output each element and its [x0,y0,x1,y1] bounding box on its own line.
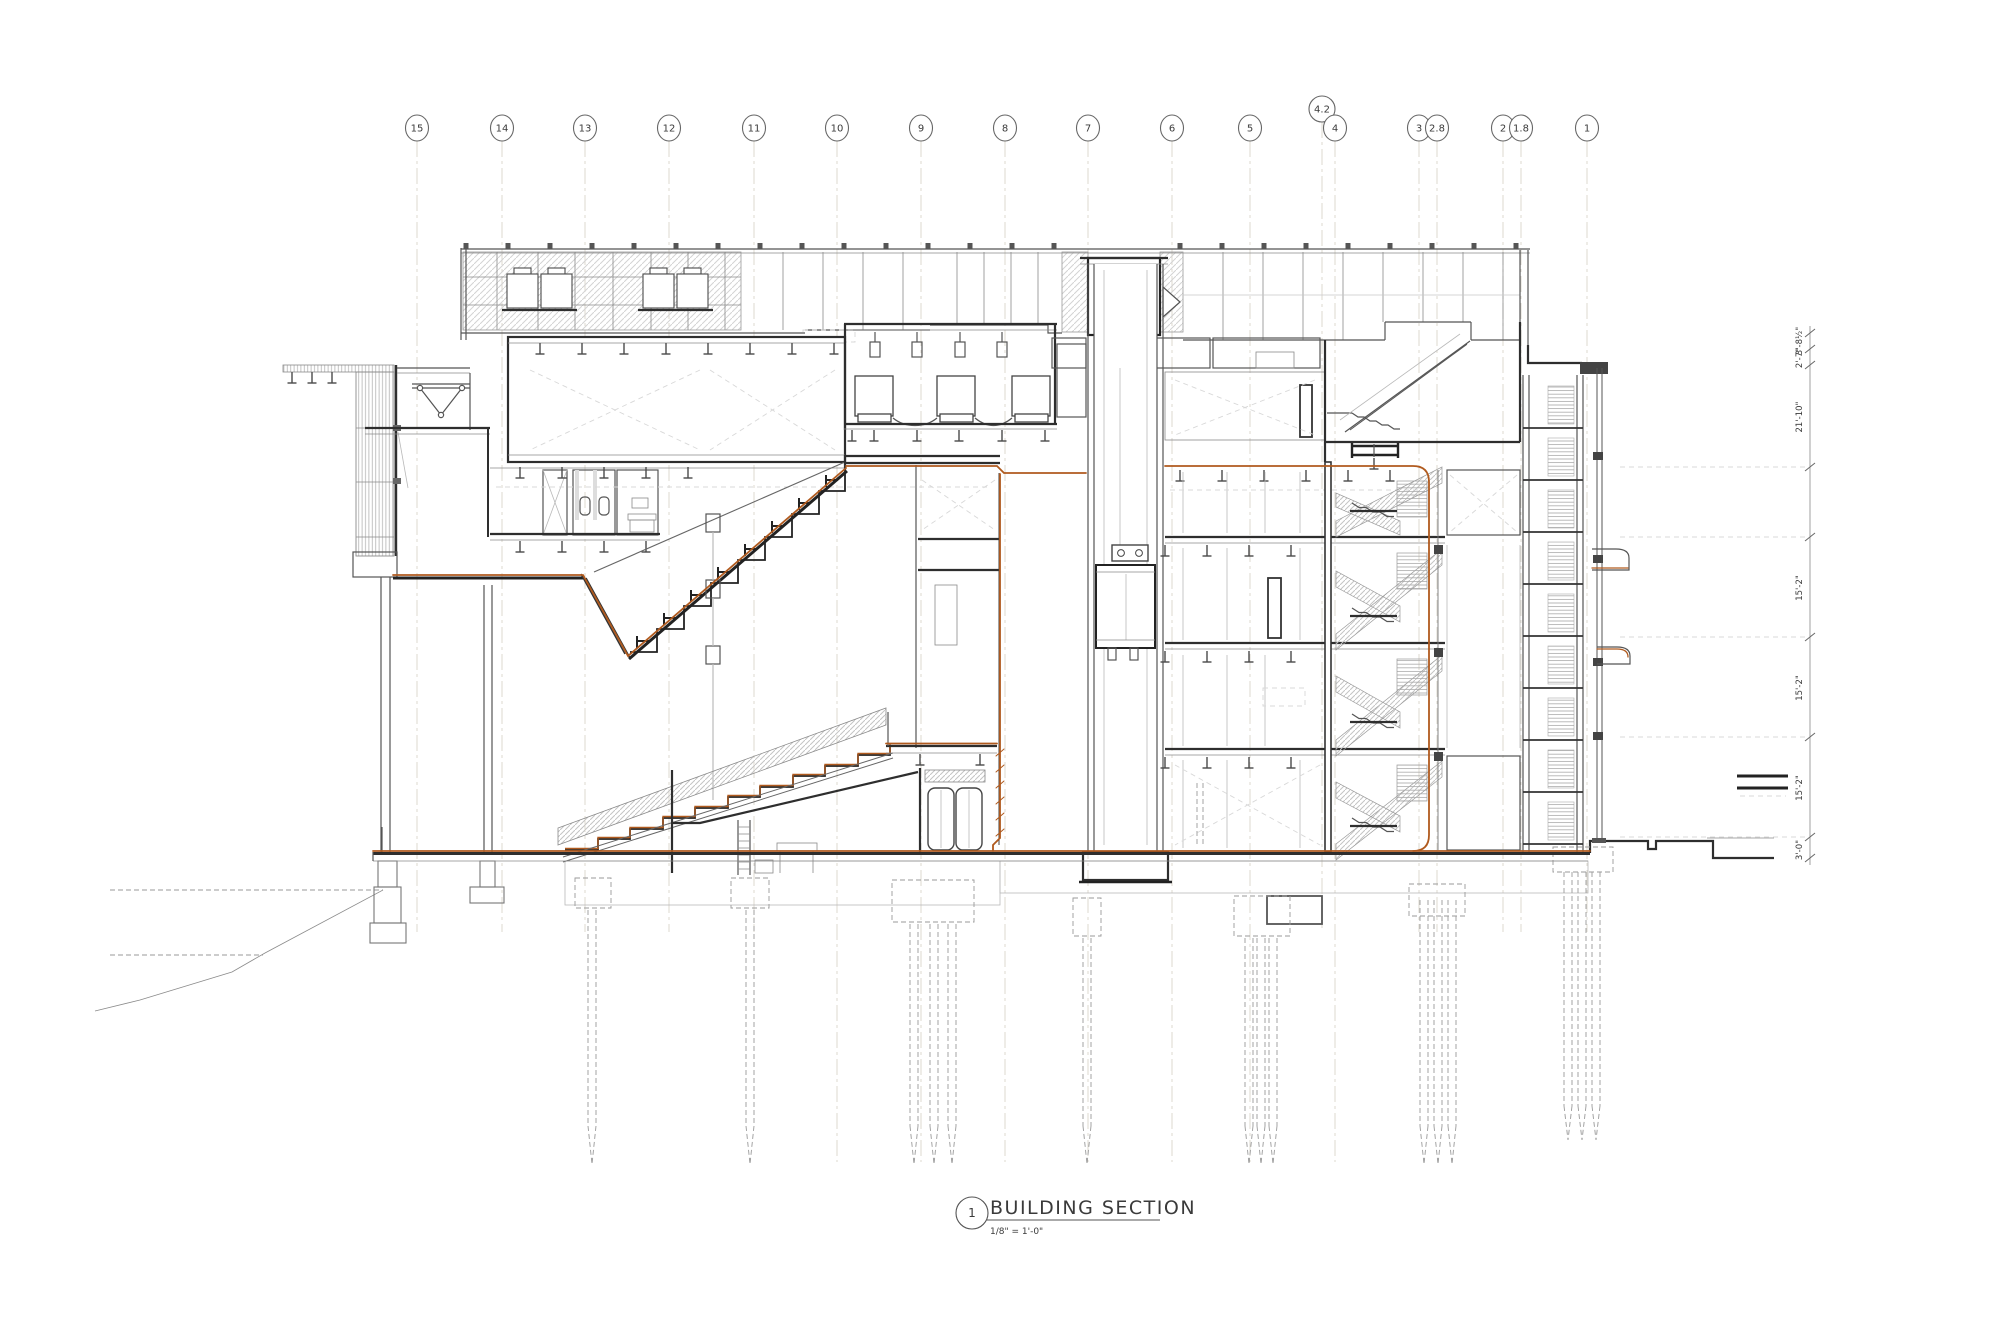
title-block: 1 BUILDING SECTION 1/8" = 1'-0" [956,1197,1196,1237]
svg-text:2.8: 2.8 [1429,124,1445,135]
ground-slab [373,852,1590,861]
building-section-drawing: 3'-8½" 2'-7" 21'-10" 15'-2" 15'-2" 15'-2… [0,0,2000,1333]
site-grade [95,776,1788,1011]
grid-bubble-6: 6 [1161,115,1184,141]
svg-text:12: 12 [663,124,676,135]
coping-clips [464,243,1519,249]
steel-beam [1352,443,1398,458]
left-wing [283,365,492,852]
dim-label: 15'-2" [1795,675,1805,701]
wall-clips [1434,545,1443,761]
grid-bubble-12: 12 [658,115,681,141]
svg-text:15: 15 [411,124,424,135]
elevator-shaft [1079,264,1172,882]
mirror [632,498,648,508]
grid-bubble-8: 8 [994,115,1017,141]
grid-bubble-10: 10 [826,115,849,141]
elevator-car [1096,565,1155,648]
svg-text:10: 10 [831,124,844,135]
tower-flights [1548,386,1574,840]
svg-text:8: 8 [1002,124,1008,135]
dim-label: 3'-0" [1795,840,1805,860]
grid-bubble-15: 15 [406,115,429,141]
svg-text:6: 6 [1169,124,1175,135]
svg-text:2: 2 [1500,124,1506,135]
scissor-stairs [1336,467,1443,860]
grid-bubble-2-8: 2.8 [1426,115,1449,141]
dim-label: 15'-2" [1795,775,1805,801]
sink-counter [628,514,656,520]
svg-text:7: 7 [1085,124,1091,135]
svg-text:4: 4 [1332,124,1338,135]
svg-text:1: 1 [1584,124,1590,135]
svg-text:4.2: 4.2 [1314,105,1330,116]
door [1268,578,1281,638]
grid-bubbles: 15 14 13 12 11 10 9 8 7 6 5 4.2 4 3 2.8 … [406,96,1599,141]
elevator-pit [1083,852,1168,880]
svg-text:13: 13 [579,124,592,135]
svg-text:5: 5 [1247,124,1253,135]
grid-bubble-9: 9 [910,115,933,141]
dim-label: 2'-7" [1795,348,1805,368]
grid-bubble-5: 5 [1239,115,1262,141]
tank-room [920,768,985,852]
grid-bubble-11: 11 [743,115,766,141]
column-footings [370,861,504,943]
canopy-truss [412,384,470,418]
urinal [599,497,609,515]
grid-bubble-4: 4 [1324,115,1347,141]
svg-text:14: 14 [496,124,509,135]
drawing-scale: 1/8" = 1'-0" [990,1227,1043,1237]
upper-floor-rooms [508,324,1325,462]
dim-label: 15'-2" [1795,575,1805,601]
pile-caps [575,847,1613,936]
drawing-title: BUILDING SECTION [990,1197,1196,1219]
svg-text:3: 3 [1416,124,1422,135]
grandstand [558,708,997,875]
foundations [370,847,1613,1164]
lab-hoods [855,376,1050,422]
grid-bubble-1: 1 [1576,115,1599,141]
detail-number: 1 [968,1206,976,1220]
grid-bubble-13: 13 [574,115,597,141]
partitions [1183,472,1300,848]
svg-text:11: 11 [748,124,761,135]
dimension-string: 3'-8½" 2'-7" 21'-10" 15'-2" 15'-2" 15'-2… [1620,326,1815,865]
dim-label: 21'-10" [1795,401,1805,432]
bathroom-band [490,467,990,552]
grid-bubble-7: 7 [1077,115,1100,141]
drawing-sheet: 3'-8½" 2'-7" 21'-10" 15'-2" 15'-2" 15'-2… [0,0,2000,1333]
desk [777,843,817,851]
roof-mechanical-band [461,243,1530,348]
roof-stair-room [1325,322,1582,469]
svg-text:1.8: 1.8 [1513,124,1529,135]
parapet-cap [1580,362,1608,374]
right-stair-tower [1447,362,1630,852]
svg-text:9: 9 [918,124,924,135]
grid-bubble-14: 14 [491,115,514,141]
ceiling-pendants [870,332,1007,357]
grid-bubble-1-8: 1.8 [1510,115,1533,141]
raker-column [706,514,720,800]
